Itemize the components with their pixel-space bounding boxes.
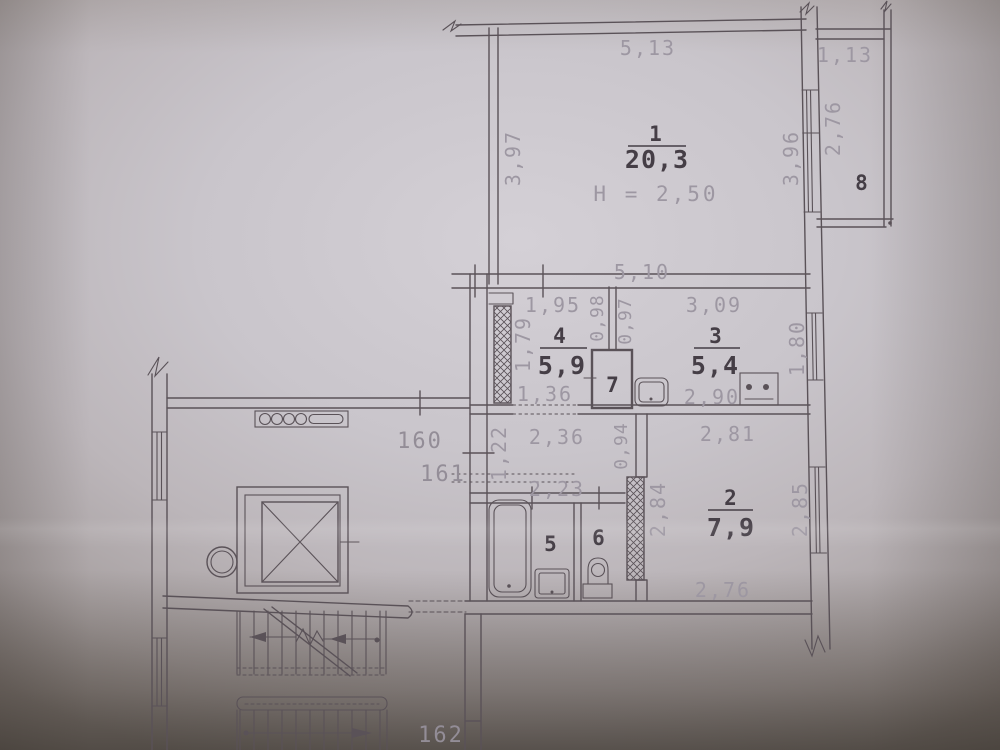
room8-number: 8 xyxy=(855,171,869,195)
dim-room1-top: 5,13 xyxy=(620,36,676,60)
dim-room3-right: 1,80 xyxy=(785,320,809,376)
window-stair-lower xyxy=(152,638,167,706)
room1-area: 20,3 xyxy=(625,145,689,174)
room2-area: 7,9 xyxy=(707,513,755,542)
wall-room5-room6 xyxy=(574,503,581,601)
dim-balcony-side: 2,76 xyxy=(821,100,845,156)
room1-number: 1 xyxy=(649,122,663,146)
dim-duct-right: 0,97 xyxy=(615,297,636,344)
stove-burner-dot xyxy=(763,384,769,390)
dim-hall-bottom: 2,23 xyxy=(529,477,585,501)
room6-number: 6 xyxy=(592,526,606,550)
bathtub-icon xyxy=(489,500,531,597)
stove-burner-dot xyxy=(746,384,752,390)
dim-hall-left: 1,22 xyxy=(487,425,511,481)
dim-room2-bottom: 2,76 xyxy=(695,578,751,602)
room7-number: 7 xyxy=(606,373,620,397)
dim-room1-right: 3,96 xyxy=(779,130,803,186)
dim-room2-top: 2,81 xyxy=(700,422,756,446)
elevator-shaft-outer xyxy=(237,487,348,593)
wall-right-bottom-break-icon xyxy=(805,636,825,656)
washbasin-dot xyxy=(551,591,554,594)
dim-room1-left: 3,97 xyxy=(501,130,525,186)
wall-landing-bottom-dashes xyxy=(409,601,466,612)
dim-hall-duct: 0,94 xyxy=(611,422,632,469)
wall-right-top-break-icon xyxy=(800,3,814,14)
vent-grille-circle xyxy=(284,414,295,425)
dim-room3-top: 3,09 xyxy=(686,293,742,317)
toilet-tank xyxy=(583,584,612,598)
elevator-shaft-inner xyxy=(245,495,340,586)
stair-steps-lower xyxy=(237,710,387,750)
duct-room4-stub xyxy=(489,293,513,304)
dim-room4-door: 1,36 xyxy=(517,382,573,406)
unit-number-161: 161 xyxy=(420,462,466,487)
unit-number-162: 162 xyxy=(418,723,464,748)
vent-grille-circle xyxy=(260,414,271,425)
bathtub-inner xyxy=(494,505,526,592)
room2-number: 2 xyxy=(724,486,738,510)
duct-room4-hatch xyxy=(494,306,511,403)
vent-grille-circle xyxy=(296,414,307,425)
dim-room3-bottom: 2,90 xyxy=(684,385,740,409)
elevator-x-mark xyxy=(262,502,338,582)
vent-grille-circle xyxy=(272,414,283,425)
duct-room2-hatch xyxy=(627,477,644,580)
stair-arrowhead-lower xyxy=(352,728,372,738)
dim-room4-top: 1,95 xyxy=(525,293,581,317)
wall-landing-bottom xyxy=(163,596,412,618)
dim-hall-top: 2,36 xyxy=(529,425,585,449)
dim-room2-left: 2,84 xyxy=(646,481,670,537)
dim-room4-left: 1,79 xyxy=(511,316,535,372)
wall-stair-left xyxy=(152,374,167,750)
room4-number: 4 xyxy=(553,324,567,348)
wall-flat-bottom xyxy=(465,601,812,614)
toilet-bowl-icon xyxy=(588,558,608,584)
wall-stair-right xyxy=(465,614,481,750)
stove-icon xyxy=(740,373,778,405)
bathtub-drain-dot xyxy=(507,584,511,588)
door-opening-room4 xyxy=(513,405,578,414)
unit-number-160: 160 xyxy=(397,429,443,454)
floor-plan-drawing: 1 20,3 H = 2,50 8 4 5,9 3 5,4 7 2 7,9 5 … xyxy=(0,0,1000,750)
landing-group xyxy=(207,411,359,593)
garbage-chute-inner xyxy=(211,551,233,573)
room3-number: 3 xyxy=(709,324,723,348)
room4-area: 5,9 xyxy=(538,351,586,380)
dim-duct-left: 0,98 xyxy=(587,294,608,341)
dim-balcony-top: 1,13 xyxy=(817,43,873,67)
room1-height-note: H = 2,50 xyxy=(593,182,718,206)
dim-room2-right: 2,85 xyxy=(788,481,812,537)
scanned-floor-plan-photo: 1 20,3 H = 2,50 8 4 5,9 3 5,4 7 2 7,9 5 … xyxy=(0,0,1000,750)
stair-arrow-dot-upper xyxy=(375,638,380,643)
wall-room1-left xyxy=(489,28,498,284)
stair-arrow-dot-lower xyxy=(244,731,249,736)
wall-landing-top xyxy=(167,398,470,408)
stair-arrowhead-left xyxy=(250,632,266,642)
toilet-bowl-hole xyxy=(592,564,605,577)
wall-balcony-break-icon xyxy=(881,1,891,11)
dim-room1-bottom: 5,10 xyxy=(614,260,670,284)
wall-top-break-icon xyxy=(443,21,461,31)
room5-number: 5 xyxy=(544,532,558,556)
room3-area: 5,4 xyxy=(691,351,739,380)
balcony-corner-dot xyxy=(888,221,892,225)
wall-stair-left-break-icon xyxy=(148,357,168,376)
vent-grille-slot xyxy=(309,415,343,424)
kitchen-sink-dot xyxy=(650,398,653,401)
window-stair-upper xyxy=(152,432,167,500)
stairs-group xyxy=(237,607,387,750)
stair-steps-upper-dashed-edge xyxy=(237,668,386,675)
